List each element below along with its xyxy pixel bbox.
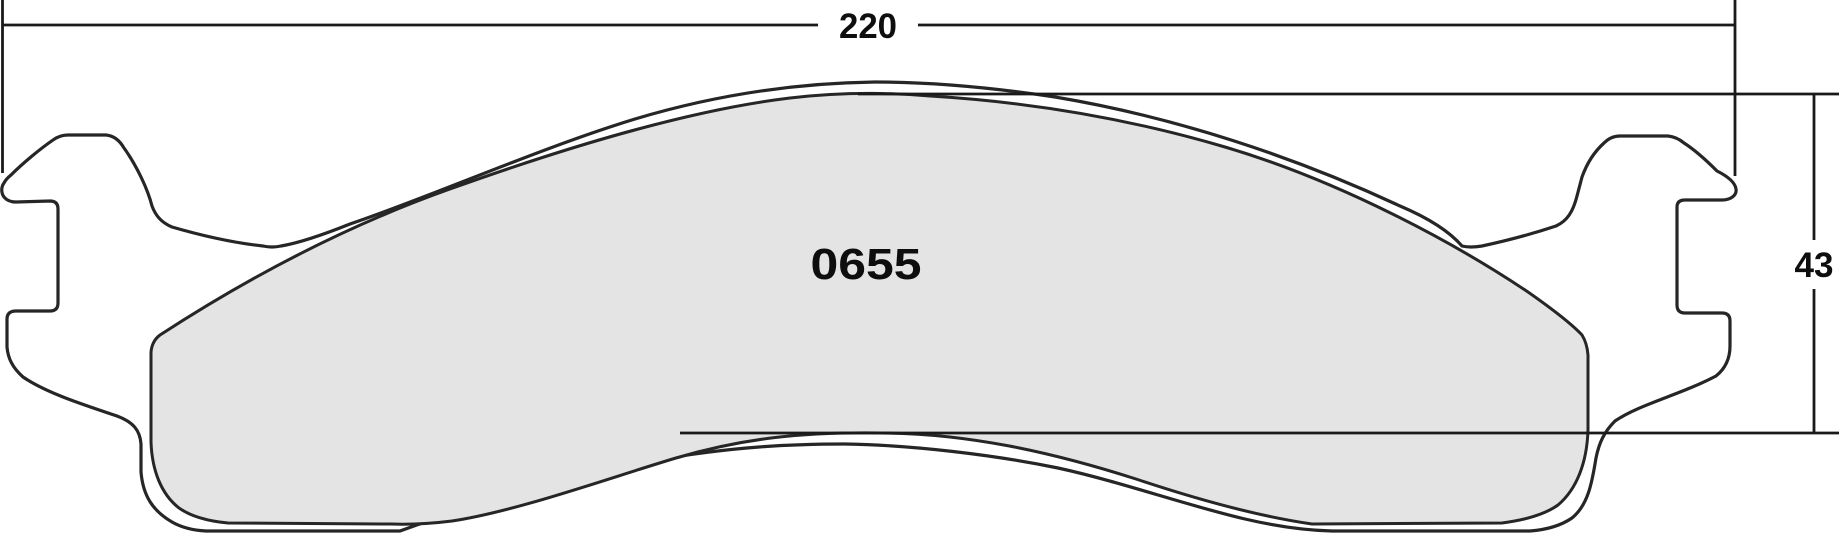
- friction-material: [151, 93, 1588, 524]
- height-dimension-label: 43: [1795, 246, 1834, 285]
- brake-pad-technical-drawing: 220 43 0655: [0, 0, 1839, 534]
- backing-plate-group: [2, 82, 1736, 531]
- drawing-canvas: 220 43 0655: [0, 0, 1839, 534]
- width-dimension-label: 220: [839, 7, 897, 46]
- part-number-label: 0655: [811, 240, 922, 289]
